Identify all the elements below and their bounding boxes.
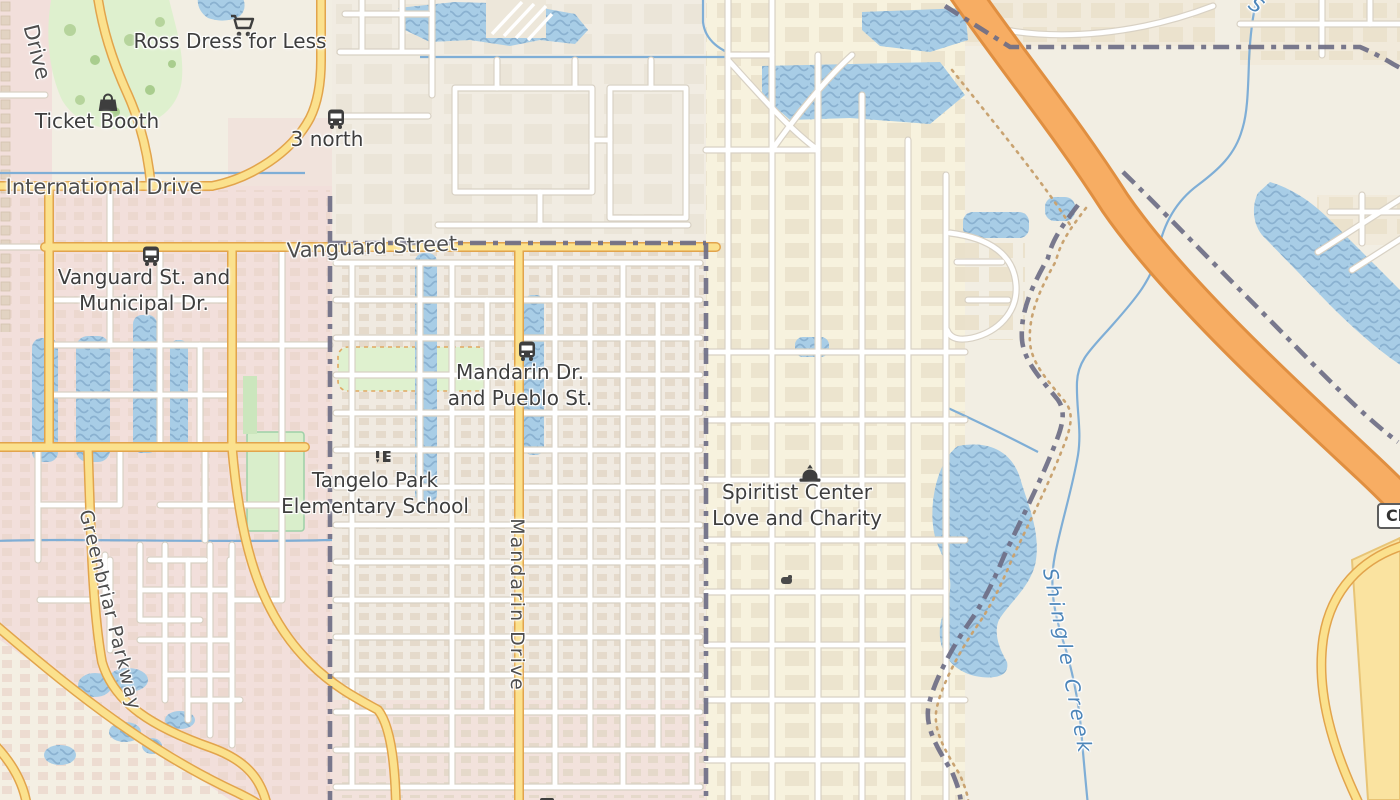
poi-text: 3 north [291,126,364,152]
poi-label-bus-stop-mandarin-pueblo: Mandarin Dr. and Pueblo St. [448,359,592,411]
poi-text: Municipal Dr. [58,290,231,316]
poi-text: and Pueblo St. [448,385,592,411]
poi-label-bus-stop-3-north: 3 north [291,126,364,152]
poi-label-ticket-booth: Ticket Booth [35,108,159,134]
parking-lot [486,0,552,40]
poi-text: Love and Charity [712,505,882,531]
street-label-international-drive: International Drive [6,174,203,200]
street-text: International Drive [6,174,203,200]
poi-label-ross-dress-for-less: Ross Dress for Less [134,28,327,54]
shield-text: Cl [1386,506,1400,525]
roadside-buildings-strip [0,0,11,332]
poi-text: Spiritist Center [712,479,882,505]
poi-text: Tangelo Park [281,467,469,493]
poi-label-bus-stop-vanguard-municipal: Vanguard St. and Municipal Dr. [58,264,231,316]
street-text: Mandarin Drive [504,518,530,692]
poi-text: Mandarin Dr. [448,359,592,385]
street-label-mandarin-drive: Mandarin Drive [504,518,530,692]
poi-label-tangelo-park-elementary: Tangelo Park Elementary School [281,467,469,519]
poi-text: Ticket Booth [35,108,159,134]
poi-text: Ross Dress for Less [134,28,327,54]
poi-label-spiritist-center: Spiritist Center Love and Charity [712,479,882,531]
road-shield: Cl [1377,503,1400,529]
poi-text: Elementary School [281,493,469,519]
map-canvas[interactable]: Ross Dress for Less Ticket Booth 3 north… [0,0,1400,800]
poi-text: Vanguard St. and [58,264,231,290]
map-tiles [0,0,1400,800]
